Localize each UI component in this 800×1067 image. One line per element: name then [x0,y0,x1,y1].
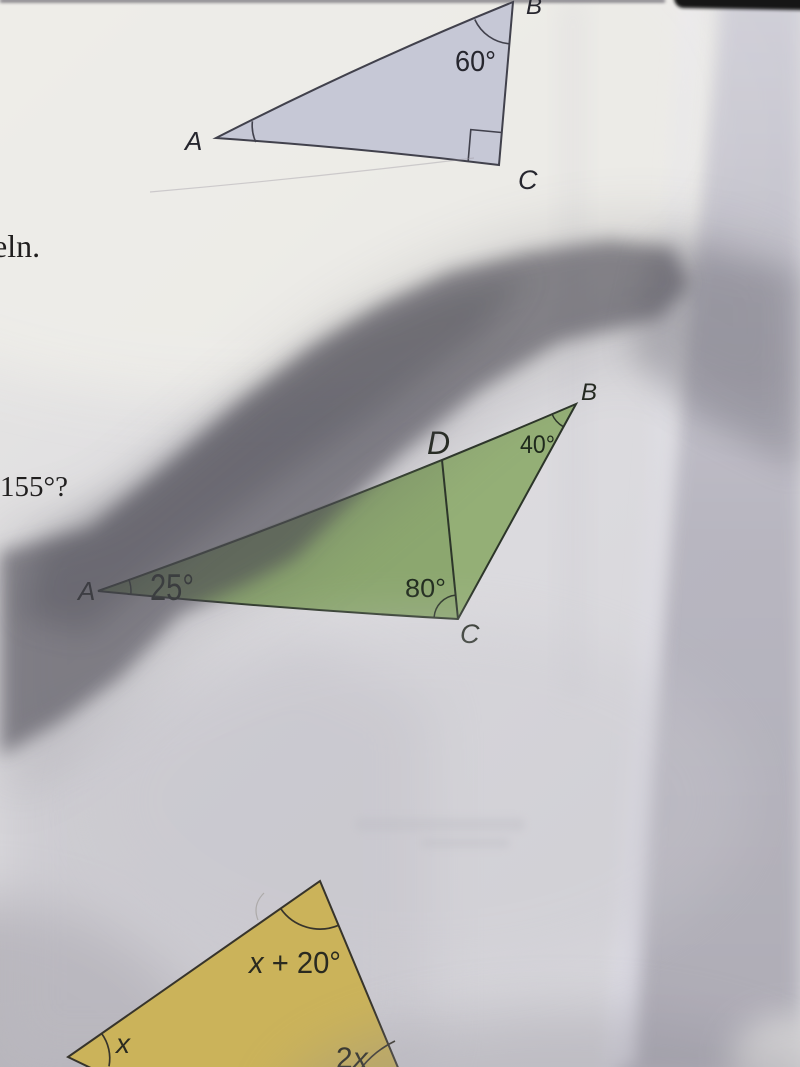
svg-text:B: B [526,0,542,20]
svg-text:40°: 40° [520,431,555,459]
svg-text:60°: 60° [455,46,496,78]
svg-text:80°: 80° [405,573,446,603]
svg-text:B: B [581,379,597,406]
svg-text:155°?: 155°? [0,471,68,503]
svg-text:A: A [183,126,202,156]
svg-text:x: x [114,1028,131,1059]
svg-text:x + 20°: x + 20° [247,945,341,980]
svg-text:C: C [518,165,538,195]
svg-text:eln.: eln. [0,228,40,264]
